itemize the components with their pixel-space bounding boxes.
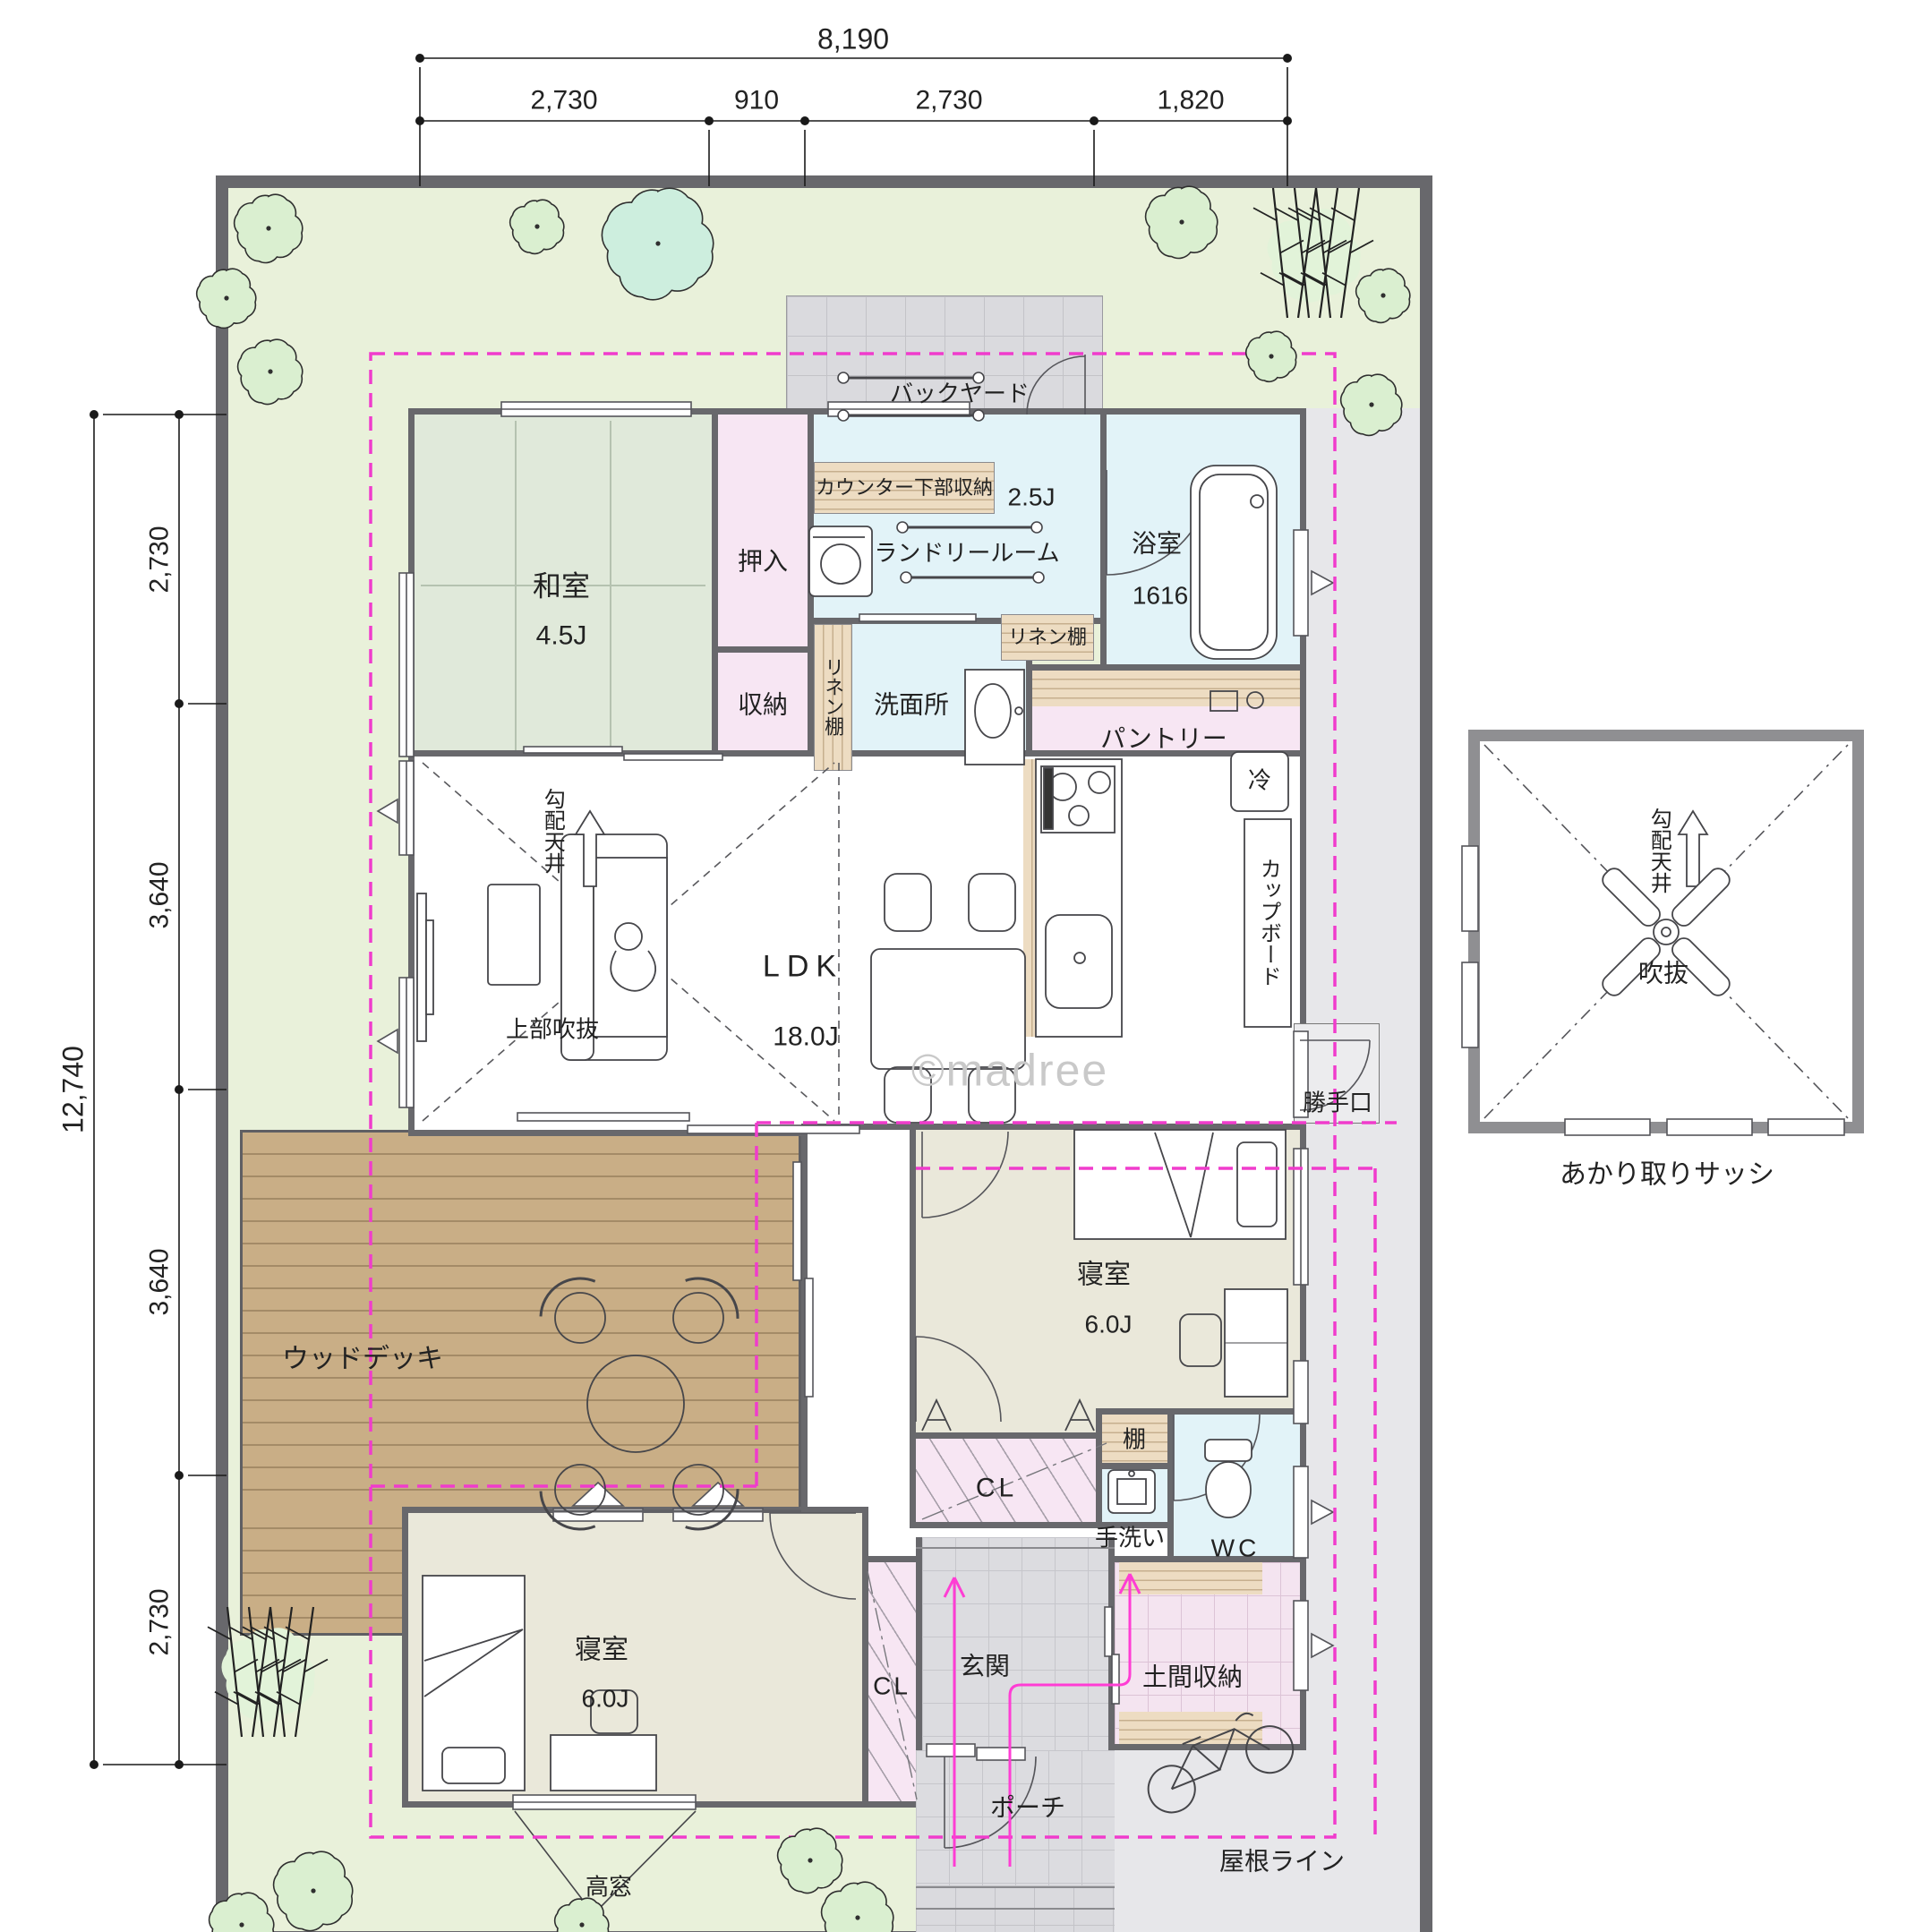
dim-left-seg-2: 3,640 bbox=[145, 861, 175, 928]
doma-shelf-bottom bbox=[1119, 1712, 1262, 1744]
label-sub-sloped-ceiling: 勾配天井 bbox=[1646, 808, 1670, 893]
label-bedroom2: 寝室 bbox=[575, 1636, 628, 1665]
dim-left-total: 12,740 bbox=[57, 1046, 89, 1133]
label-ldk: LDK bbox=[763, 950, 843, 983]
room-laundry bbox=[808, 408, 1107, 624]
label-laundry-size: 2.5J bbox=[1008, 484, 1056, 512]
label-sub-caption: あかり取りサッシ bbox=[1560, 1160, 1774, 1190]
label-sloped-ceiling-main: 勾配天井 bbox=[540, 788, 563, 874]
label-bathroom: 浴室 bbox=[1132, 531, 1182, 559]
dim-top-seg-2: 910 bbox=[734, 86, 779, 115]
roof-overhang-strip bbox=[1300, 408, 1420, 1932]
label-senmenjo: 洗面所 bbox=[874, 692, 949, 720]
pantry-shelf-top bbox=[1032, 671, 1300, 706]
label-closet1: CL bbox=[976, 1474, 1017, 1503]
dimension-lines-left bbox=[94, 415, 227, 1765]
room-oshiire bbox=[712, 408, 814, 653]
watermark: ©madree bbox=[911, 1047, 1108, 1096]
label-backyard: バックヤード bbox=[890, 381, 1030, 407]
room-genkan bbox=[916, 1537, 1115, 1757]
label-sub-void: 吹抜 bbox=[1638, 961, 1688, 988]
label-shunou: 収納 bbox=[738, 692, 788, 720]
label-porch: ポーチ bbox=[990, 1795, 1065, 1823]
label-linen-1: リネン棚 bbox=[822, 657, 843, 736]
wood-deck-extension bbox=[240, 1507, 408, 1636]
label-back-door: 勝手口 bbox=[1303, 1090, 1372, 1116]
label-washitsu-size: 4.5J bbox=[536, 621, 587, 651]
label-linen-2: リネン棚 bbox=[1008, 627, 1087, 648]
label-laundry: ランドリールーム bbox=[874, 541, 1059, 567]
label-bedroom2-size: 6.0J bbox=[582, 1686, 629, 1714]
label-cupboard: カップボード bbox=[1256, 858, 1279, 987]
label-high-window: 高窓 bbox=[586, 1875, 632, 1901]
label-upper-void: 上部吹抜 bbox=[506, 1017, 599, 1043]
label-ldk-size: 18.0J bbox=[773, 1022, 838, 1052]
doma-shelf-top bbox=[1119, 1562, 1262, 1594]
dim-left-seg-1: 2,730 bbox=[145, 526, 175, 593]
label-closet2: CL bbox=[873, 1673, 910, 1701]
label-pantry: パントリー bbox=[1100, 726, 1227, 754]
kitchen-counter-side bbox=[1023, 759, 1036, 1037]
label-bathroom-size: 1616 bbox=[1133, 583, 1188, 611]
label-shelf: 棚 bbox=[1123, 1427, 1146, 1453]
room-handwash bbox=[1096, 1463, 1174, 1528]
dim-left-seg-4: 2,730 bbox=[145, 1588, 175, 1655]
sub-diagram-void bbox=[1468, 730, 1864, 1133]
approach-area bbox=[916, 1885, 1115, 1932]
dim-top-seg-3: 2,730 bbox=[915, 86, 982, 115]
label-oshiire: 押入 bbox=[738, 549, 788, 577]
label-wc: WC bbox=[1211, 1535, 1261, 1563]
dim-left-seg-3: 3,640 bbox=[145, 1248, 175, 1315]
label-washitsu: 和室 bbox=[533, 570, 590, 602]
wood-deck-area bbox=[240, 1130, 801, 1513]
room-doma bbox=[1108, 1556, 1306, 1750]
label-roof-line: 屋根ライン bbox=[1219, 1849, 1345, 1876]
label-counter-storage: カウンター下部収納 bbox=[816, 477, 993, 499]
label-wood-deck: ウッドデッキ bbox=[282, 1345, 443, 1374]
dim-top-seg-4: 1,820 bbox=[1157, 86, 1224, 115]
hallway-vertical bbox=[801, 1124, 916, 1571]
label-bedroom1: 寝室 bbox=[1077, 1261, 1131, 1290]
label-handwash: 手洗い bbox=[1095, 1526, 1165, 1552]
dim-top-total: 8,190 bbox=[817, 23, 889, 55]
label-genkan: 玄関 bbox=[960, 1654, 1010, 1681]
floor-plan-page: 8,190 2,730 910 2,730 1,820 12,740 2,730… bbox=[0, 0, 1932, 1932]
paved-area-bottom-right bbox=[1108, 1744, 1420, 1932]
dimension-dots-left bbox=[90, 410, 184, 1769]
dim-top-seg-1: 2,730 bbox=[530, 86, 597, 115]
label-bedroom1-size: 6.0J bbox=[1085, 1312, 1133, 1339]
room-bedroom2 bbox=[402, 1507, 868, 1808]
label-fridge: 冷 bbox=[1248, 768, 1271, 794]
dimension-lines-top bbox=[420, 58, 1287, 186]
label-doma: 土間収納 bbox=[1142, 1664, 1243, 1692]
